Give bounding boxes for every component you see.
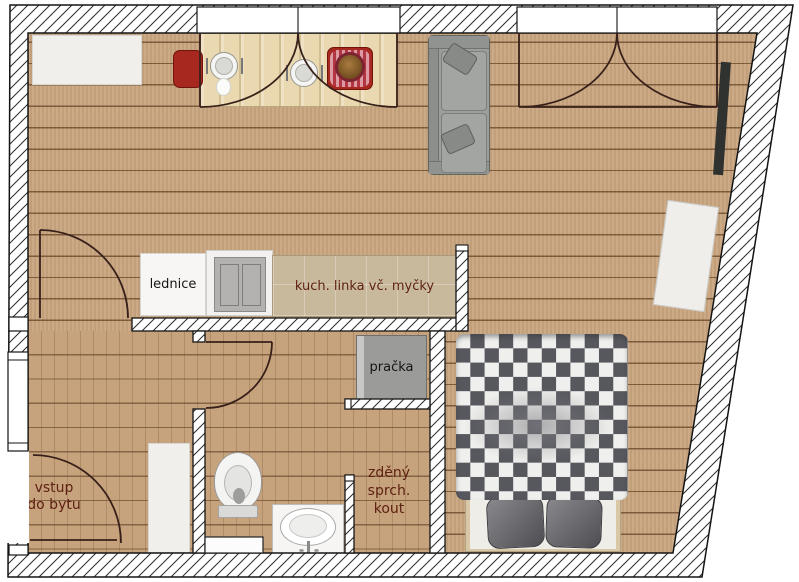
french-door-dining (197, 7, 400, 33)
wall-cap (9, 545, 28, 555)
floor-plan: lednice kuch. linka vč. myčky vstup do b… (0, 0, 799, 582)
window-frame (8, 360, 28, 443)
wardrobe (32, 35, 142, 85)
toilet-drain (233, 488, 245, 504)
shower-label-line2: sprch. (355, 482, 423, 500)
dining-chair-left (173, 50, 203, 88)
napkin (216, 78, 231, 96)
fork (206, 58, 208, 74)
hall-closet (148, 443, 190, 553)
entrance-label-line1: vstup (18, 480, 90, 497)
fridge-label: lednice (150, 277, 197, 292)
sink-basin-inner (289, 514, 327, 538)
entrance-label: vstup do bytu (18, 480, 90, 514)
french-door-balcony (517, 7, 717, 33)
shower-label: zděný sprch. kout (355, 464, 423, 518)
toilet (214, 452, 262, 522)
window-left (8, 352, 28, 451)
sofa-back (429, 36, 439, 174)
cabinet-door (242, 264, 261, 306)
cabinet-front (214, 257, 266, 312)
washing-machine: pračka (356, 335, 427, 400)
plate-center (215, 57, 233, 75)
plate-center (295, 64, 313, 82)
sink (272, 504, 344, 554)
person-head (335, 52, 365, 82)
kitchen-label: kuch. linka vč. myčky (295, 278, 434, 295)
bed-pillow (486, 495, 546, 550)
knife (241, 58, 243, 74)
knife (321, 65, 323, 81)
washer-label: pračka (370, 360, 414, 375)
sofa (428, 35, 490, 175)
tap-handle (299, 549, 304, 552)
cabinet-door (220, 264, 239, 306)
wall-cap (9, 317, 28, 331)
blanket-wrinkles (456, 334, 628, 500)
fork (286, 65, 288, 81)
entrance-label-line2: do bytu (18, 497, 90, 514)
toilet-tank (218, 505, 258, 518)
tap-handle (314, 549, 319, 552)
kitchen-cabinet (206, 250, 273, 316)
faucet (307, 541, 310, 554)
shower-label-line3: kout (355, 500, 423, 518)
bed-pillow (545, 495, 603, 549)
kitchen-counter: kuch. linka vč. myčky (272, 255, 457, 317)
bed-blanket (456, 334, 628, 500)
fridge: lednice (140, 253, 206, 316)
washer-edge (357, 336, 364, 399)
shower-label-line1: zděný (355, 464, 423, 482)
